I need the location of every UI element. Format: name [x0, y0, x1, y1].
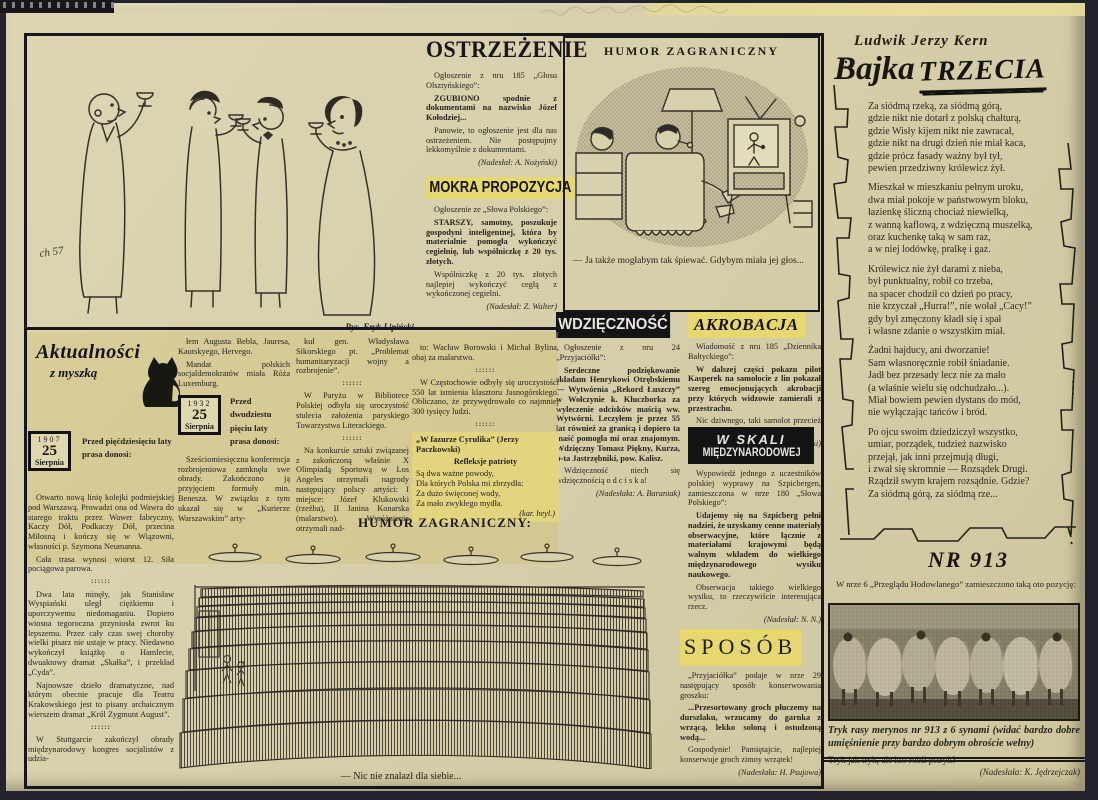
sposob-quote: ...Przesortowany groch płuczemy na dursz…	[680, 703, 821, 742]
sposob-comment: Gospodynie! Pamiętajcie, najlepiej konse…	[680, 745, 821, 765]
aktualnosci-col2-top: łem Augusta Bebla, Jauresa, Kautskyego, …	[178, 337, 290, 389]
empty-theater-cartoon	[171, 541, 661, 769]
humor-zagraniczny-box: HUMOR ZAGRANICZNY	[563, 36, 820, 312]
aktualnosci-col4-text: to: Wacław Borowski i Michał Bylina, oba…	[412, 343, 559, 428]
cyrulik-source: „W fazurze Cyrulika” (Jerzy Paczkowski)	[416, 435, 555, 455]
bajka-stanza-4: Żadni hajducy, ani dworzanie!Sam własnor…	[868, 345, 1064, 419]
aktualnosci-logo: Aktualności	[36, 341, 140, 363]
ostrzezenie-section: OSTRZEŻENIE Ogłoszenie z nru 185 „Głosu …	[426, 37, 557, 315]
mokra-propozycja-title: MOKRA PROPOZYCJA	[426, 177, 575, 199]
w-skali-quote: Udajemy się na Szpicberg pełni nadziei, …	[688, 511, 821, 579]
sposob-source: „Przyjaciółka” podaje w nrze 29 następuj…	[680, 671, 821, 700]
ostrzezenie-credit: (Nadesłał: A. Nożyński)	[426, 158, 557, 168]
aktualnosci-logo-sub: z myszką	[50, 365, 97, 380]
akrobacja-source: Wiadomość z nru 185 „Dziennika Bałtyckie…	[688, 342, 821, 362]
lead-1932: Przed dwudziestu pięciu laty prasa donos…	[230, 395, 290, 448]
wdziecznosc-quote: Serdeczne podziękowanie składam Henrykow…	[556, 366, 680, 464]
bajka-stanza-5: Po ojcu swoim dziedziczył wszystko,umiar…	[868, 427, 1064, 501]
bajka-title-caps: TRZECIA	[918, 53, 1046, 93]
mokra-quote: STARSZY, samotny, poszukuje gospodyni in…	[426, 218, 557, 267]
ostrzezenie-source: Ogłoszenie z nru 185 „Głosu Olsztyńskieg…	[426, 71, 557, 91]
w-skali-title-line1: W SKALI	[692, 432, 810, 447]
wdziecznosc-punchline: Wdzięczność niech się wdzięcznością o d …	[556, 466, 680, 486]
wdziecznosc-title: WDZIĘCZNOŚĆ	[556, 312, 670, 338]
mokra-credit: (Nadesłał: Z. Walter)	[426, 302, 557, 312]
sposob-credit: (Nadesłała: H. Psujowa)	[680, 768, 821, 778]
lead-1907: Przed pięćdziesięciu laty prasa donosi:	[82, 435, 172, 462]
zigzag-border-left	[826, 85, 854, 535]
cartoonist-signature: ch 57	[39, 245, 65, 260]
bajka-stanza-2: Mieszkał w mieszkaniu pełnym uroku,dwa m…	[868, 182, 1064, 256]
cyrulik-verse: Są dwa ważne powody,Dla których Polska m…	[416, 469, 555, 519]
w-skali-source: Wypowiedź jednego z uczestników polskiej…	[688, 469, 821, 508]
cat-icon	[136, 355, 180, 407]
aktualnosci-col2: łem Augusta Bebla, Jauresa, Kautskyego, …	[178, 337, 290, 526]
newspaper-scan-page: { "party": { "sig": "ch 57", "credit": "…	[0, 0, 1098, 800]
w-skali-title-line2: MIĘDZYNARODOWEJ	[703, 447, 800, 459]
bajka-stanza-3: Królewicz nie żył darami z nieba,był pun…	[868, 264, 1064, 338]
sheep-photo	[828, 603, 1080, 721]
w-skali-section: W SKALI MIĘDZYNARODOWEJ Wypowiedź jedneg…	[688, 427, 821, 628]
nr913-credit: (Nadesłała: K. Jędrzejczak)	[828, 767, 1080, 777]
aktualnosci-col3: kuł gen. Władysława Sikorskiego pt. „Pro…	[296, 337, 409, 537]
wdziecznosc-source: Ogłoszenie z nru 24 „Przyjaciółki”:	[556, 343, 680, 363]
theater-cartoon-caption: — Nic nie znalazł dla siebie...	[236, 771, 566, 782]
badge-1907-month: Sierpnia	[35, 458, 64, 467]
humor-tv-title: HUMOR ZAGRANICZNY	[565, 44, 818, 59]
nr913-intro: W nrze 6 „Przeglądu Hodowlanego” zamiesz…	[828, 579, 1080, 589]
w-skali-credit: (Nadesłał: N. N.)	[688, 615, 821, 625]
ostrzezenie-comment: Panowie, to ogłoszenie jest dla nas ostr…	[426, 126, 557, 155]
humor-theater-title: HUMOR ZAGRANICZNY:	[358, 515, 532, 531]
section-divider-rule	[24, 327, 561, 330]
wdziecznosc-section: WDZIĘCZNOŚĆ Ogłoszenie z nru 24 „Przyjac…	[556, 312, 680, 502]
mokra-source: Ogłoszenie ze „Słowa Polskiego”:	[426, 205, 557, 215]
masthead-fragment	[0, 0, 114, 13]
aktualnosci-header: Aktualności z myszką	[36, 341, 186, 382]
badge-1907: 1907 25 Sierpnia	[28, 431, 71, 471]
mokra-comment: Wspólniczkę z 20 tys. złotych najlepiej …	[426, 270, 557, 299]
wdziecznosc-credit: (Nadesłała: A. Baraniak)	[556, 489, 680, 499]
pencil-handwriting	[536, 3, 776, 19]
sposob-section: SPOSÓB „Przyjaciółka” podaje w nrze 29 n…	[680, 629, 821, 781]
w-skali-title: W SKALI MIĘDZYNARODOWEJ	[688, 427, 814, 464]
tv-room-cartoon	[570, 61, 814, 253]
akrobacja-quote: W dalszej części pokazu pilot Kasperek n…	[688, 365, 821, 414]
nr913-punchline: Tryk jak tryk, ale kto robił pstryk?	[828, 756, 1080, 766]
cocktail-party-cartoon: ch 57	[30, 39, 420, 319]
cyrulik-quote-block: „W fazurze Cyrulika” (Jerzy Paczkowski) …	[412, 432, 559, 522]
tv-cartoon-caption: — Ja także mogłabym tak śpiewać. Gdybym …	[565, 253, 818, 268]
bajka-poem: Za siódmą rzeką, za siódmą górą,gdzie ni…	[868, 101, 1064, 508]
cyrulik-title: Refleksje patrioty	[416, 457, 555, 467]
badge-1932-day: 25	[185, 408, 214, 422]
nr913-title: NR 913	[928, 547, 1009, 573]
bajka-title: Bajka TRZECIA	[834, 51, 1084, 92]
ostrzezenie-quote: ZGUBIONO spodnie z dokumentami na nazwis…	[426, 94, 557, 123]
akrobacja-title: AKROBACJA	[688, 312, 805, 338]
w-skali-comment: Obserwacja takiego wielkiego wysiku, to …	[688, 583, 821, 612]
newspaper-page: ch 57 Rys. Eryk Lipiński OSTRZEŻENIE Ogł…	[6, 3, 1085, 791]
sposob-title: SPOSÓB	[680, 629, 801, 666]
smiley-icon	[842, 59, 856, 71]
sheep-photo-caption: Tryk rasy merynos nr 913 z 6 synami (wid…	[828, 725, 1080, 751]
aktualnosci-col4: to: Wacław Borowski i Michał Bylina, oba…	[412, 343, 559, 522]
badge-1932-row: 1932 25 Sierpnia Przed dwudziestu pięciu…	[178, 395, 290, 451]
badge-1932-month: Sierpnia	[185, 422, 214, 431]
badge-1907-day: 25	[35, 444, 64, 458]
ostrzezenie-title: OSTRZEŻENIE	[426, 37, 550, 63]
bajka-stanza-1: Za siódmą rzeką, za siódmą górą,gdzie ni…	[868, 101, 1064, 175]
aktualnosci-col2-bottom: Sześciomiesięczna konferencja rozbrojeni…	[178, 455, 290, 523]
bajka-author: Ludwik Jerzy Kern	[854, 33, 989, 50]
aktualnosci-col1: Otwarto nową linię kolejki podmiejskiej …	[28, 493, 174, 767]
